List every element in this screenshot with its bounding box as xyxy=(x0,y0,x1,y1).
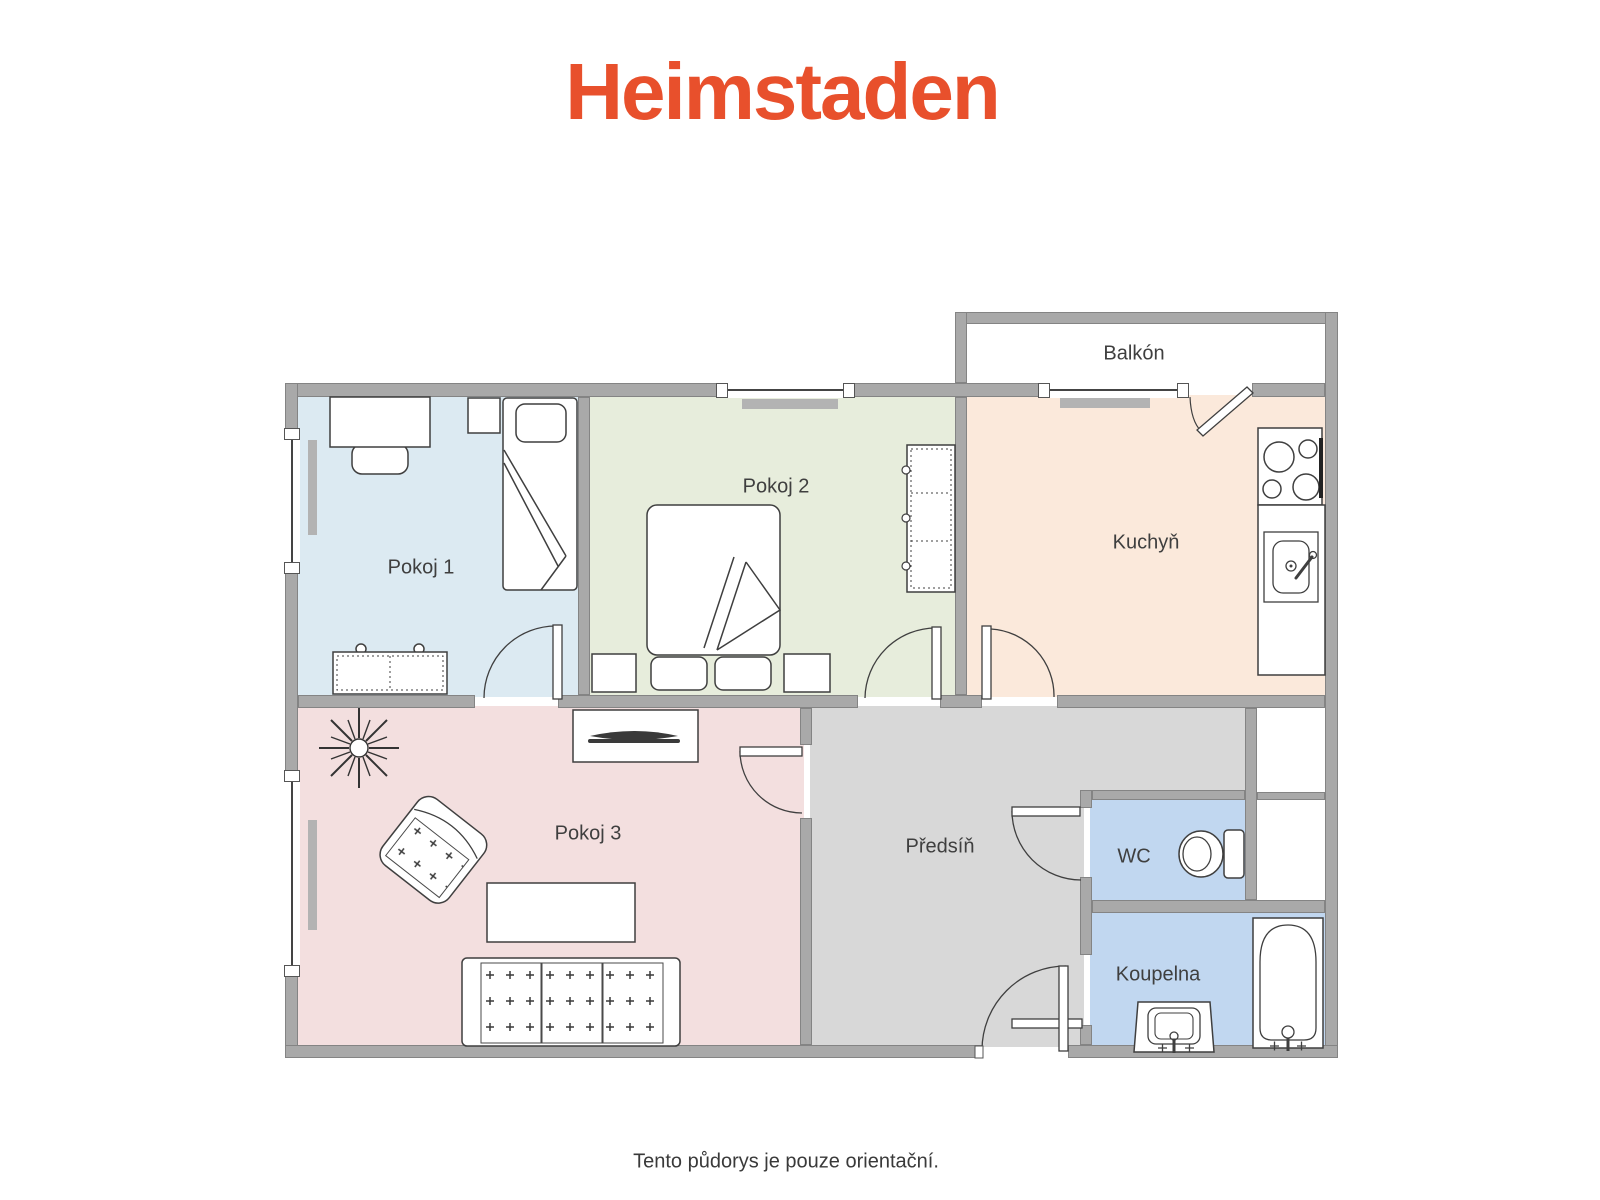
window-pane xyxy=(1050,389,1177,391)
wall-left-1 xyxy=(285,383,298,430)
wall-right xyxy=(1325,312,1338,1058)
radiator-pokoj3 xyxy=(308,820,317,930)
room-label-pokoj1: Pokoj 1 xyxy=(388,557,455,580)
wall-closet-divider xyxy=(1257,792,1325,800)
room-label-koupelna: Koupelna xyxy=(1116,964,1201,987)
floorplan-page: Heimstaden xyxy=(0,0,1600,1200)
window-cap xyxy=(1038,383,1050,398)
window-cap xyxy=(284,428,300,440)
window-pokoj1 xyxy=(284,428,300,574)
closet-upper xyxy=(1255,706,1327,794)
wall-top-1 xyxy=(285,383,718,397)
wall-mid-1 xyxy=(298,695,475,708)
window-pane xyxy=(291,782,293,965)
wall-mid-3 xyxy=(940,695,982,708)
wall-top-3 xyxy=(1252,383,1325,397)
radiator-pokoj1 xyxy=(308,440,317,535)
window-pane xyxy=(291,440,293,562)
window-cap xyxy=(284,770,300,782)
wall-pokoj3-predsin-1 xyxy=(800,708,812,745)
room-label-balkon: Balkón xyxy=(1103,343,1164,366)
window-cap xyxy=(284,562,300,574)
room-label-predsin: Předsíň xyxy=(906,836,975,859)
wall-koupelna-top xyxy=(1092,900,1325,913)
window-kuchyn-balkon xyxy=(1038,383,1189,398)
window-pokoj2 xyxy=(716,383,855,398)
room-pokoj1 xyxy=(296,395,582,697)
window-pane xyxy=(728,389,843,391)
wall-top-2 xyxy=(853,383,1040,397)
wall-pokoj1-pokoj2 xyxy=(578,397,590,695)
wall-wc-right xyxy=(1245,708,1257,900)
wall-predsin-wc-1 xyxy=(1080,790,1092,808)
window-cap xyxy=(716,383,728,398)
radiator-kuchyn xyxy=(1060,398,1150,408)
heimstaden-logo: Heimstaden xyxy=(565,46,998,138)
disclaimer-text: Tento půdorys je pouze orientační. xyxy=(633,1151,939,1174)
wall-wc-top xyxy=(1092,790,1245,800)
window-cap xyxy=(843,383,855,398)
wall-balcony-top xyxy=(955,312,1338,324)
room-pokoj3 xyxy=(296,706,804,1047)
room-predsin-ext xyxy=(1080,706,1247,792)
wall-predsin-wc-3 xyxy=(1080,1025,1092,1045)
room-label-pokoj2: Pokoj 2 xyxy=(743,476,810,499)
wall-bottom-2 xyxy=(1068,1045,1338,1058)
radiator-pokoj2 xyxy=(742,399,838,409)
wall-predsin-wc-2 xyxy=(1080,877,1092,955)
room-pokoj2 xyxy=(588,395,959,697)
window-pokoj3 xyxy=(284,770,300,977)
wall-pokoj3-predsin-2 xyxy=(800,818,812,1045)
closet-lower xyxy=(1255,798,1327,902)
wall-mid-2 xyxy=(558,695,858,708)
wall-balcony-left xyxy=(955,312,967,383)
wall-mid-4 xyxy=(1057,695,1325,708)
room-wc xyxy=(1090,798,1247,902)
wall-pokoj2-kuchyn xyxy=(955,397,967,695)
room-label-pokoj3: Pokoj 3 xyxy=(555,823,622,846)
room-label-wc: WC xyxy=(1117,846,1150,869)
window-cap xyxy=(1177,383,1189,398)
room-predsin xyxy=(810,706,1084,1047)
window-cap xyxy=(284,965,300,977)
room-label-kuchyn: Kuchyň xyxy=(1113,532,1180,555)
wall-left-2 xyxy=(285,570,298,772)
wall-bottom-1 xyxy=(285,1045,982,1058)
